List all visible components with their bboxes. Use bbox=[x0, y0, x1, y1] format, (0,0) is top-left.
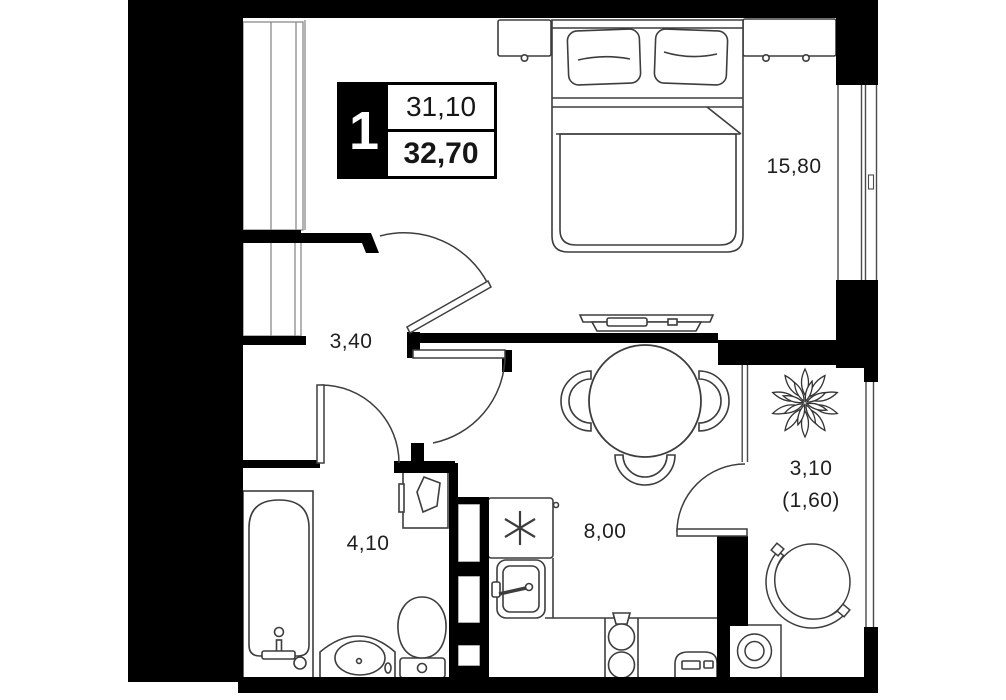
chair-bottom bbox=[615, 455, 675, 485]
room-label-hallway: 3,40 bbox=[330, 330, 373, 354]
pillow-left bbox=[567, 29, 641, 85]
wall-bottom bbox=[238, 677, 878, 693]
room-count: 1 bbox=[340, 85, 388, 176]
wardrobe-hallway bbox=[243, 238, 301, 336]
apartment-badge: 1 31,10 32,70 bbox=[337, 82, 497, 179]
living-area-value: 31,10 bbox=[388, 85, 494, 129]
wall-bedroom-kitchen bbox=[413, 333, 718, 343]
wall-balcony-top bbox=[718, 340, 878, 365]
pillow-right bbox=[654, 29, 728, 85]
dining-table bbox=[561, 345, 729, 485]
plant bbox=[772, 369, 839, 437]
bedroom-door bbox=[380, 233, 491, 333]
water-heater-cabinet bbox=[399, 472, 448, 528]
room-label-bedroom: 15,80 bbox=[766, 155, 821, 179]
balcony-glazing-left bbox=[742, 365, 747, 462]
kitchen-door bbox=[413, 350, 505, 443]
tv-console bbox=[580, 315, 713, 331]
balcony-door bbox=[677, 464, 747, 536]
wardrobe-bedroom bbox=[243, 20, 305, 230]
plant-outer-leaves bbox=[772, 369, 839, 437]
bedroom-window bbox=[838, 85, 877, 280]
round-chair bbox=[766, 543, 850, 628]
shaft-wall-right bbox=[480, 500, 489, 680]
room-label-balcony: 3,10 bbox=[790, 457, 833, 481]
total-area-value: 32,70 bbox=[388, 132, 494, 176]
dresser bbox=[743, 19, 836, 61]
wall-bathroom-top bbox=[238, 460, 320, 468]
floor-plan-canvas bbox=[0, 0, 1006, 700]
bed bbox=[552, 20, 743, 252]
hob bbox=[605, 613, 638, 678]
balcony-glazing-right bbox=[866, 381, 874, 627]
room-label-bathroom: 4,10 bbox=[347, 532, 390, 556]
kitchen-sink bbox=[492, 560, 545, 618]
room-label-kitchen: 8,00 bbox=[584, 520, 627, 544]
chair-left bbox=[561, 371, 591, 431]
nightstand bbox=[498, 20, 551, 61]
bathtub bbox=[243, 491, 313, 678]
wall-left-mass bbox=[128, 0, 243, 682]
oven bbox=[675, 652, 717, 678]
wall-kitchen-balcony bbox=[717, 536, 748, 626]
washing-machine bbox=[728, 625, 781, 679]
chair-right bbox=[699, 371, 729, 431]
bathroom-door bbox=[317, 385, 399, 463]
wall-right-top bbox=[836, 18, 878, 85]
vanity-sink bbox=[320, 636, 395, 678]
toilet bbox=[398, 597, 446, 678]
floor-plan: 15,80 3,40 4,10 8,00 3,10 (1,60) 1 31,10… bbox=[0, 0, 1006, 700]
room-label-balcony-reduced: (1,60) bbox=[782, 489, 840, 513]
